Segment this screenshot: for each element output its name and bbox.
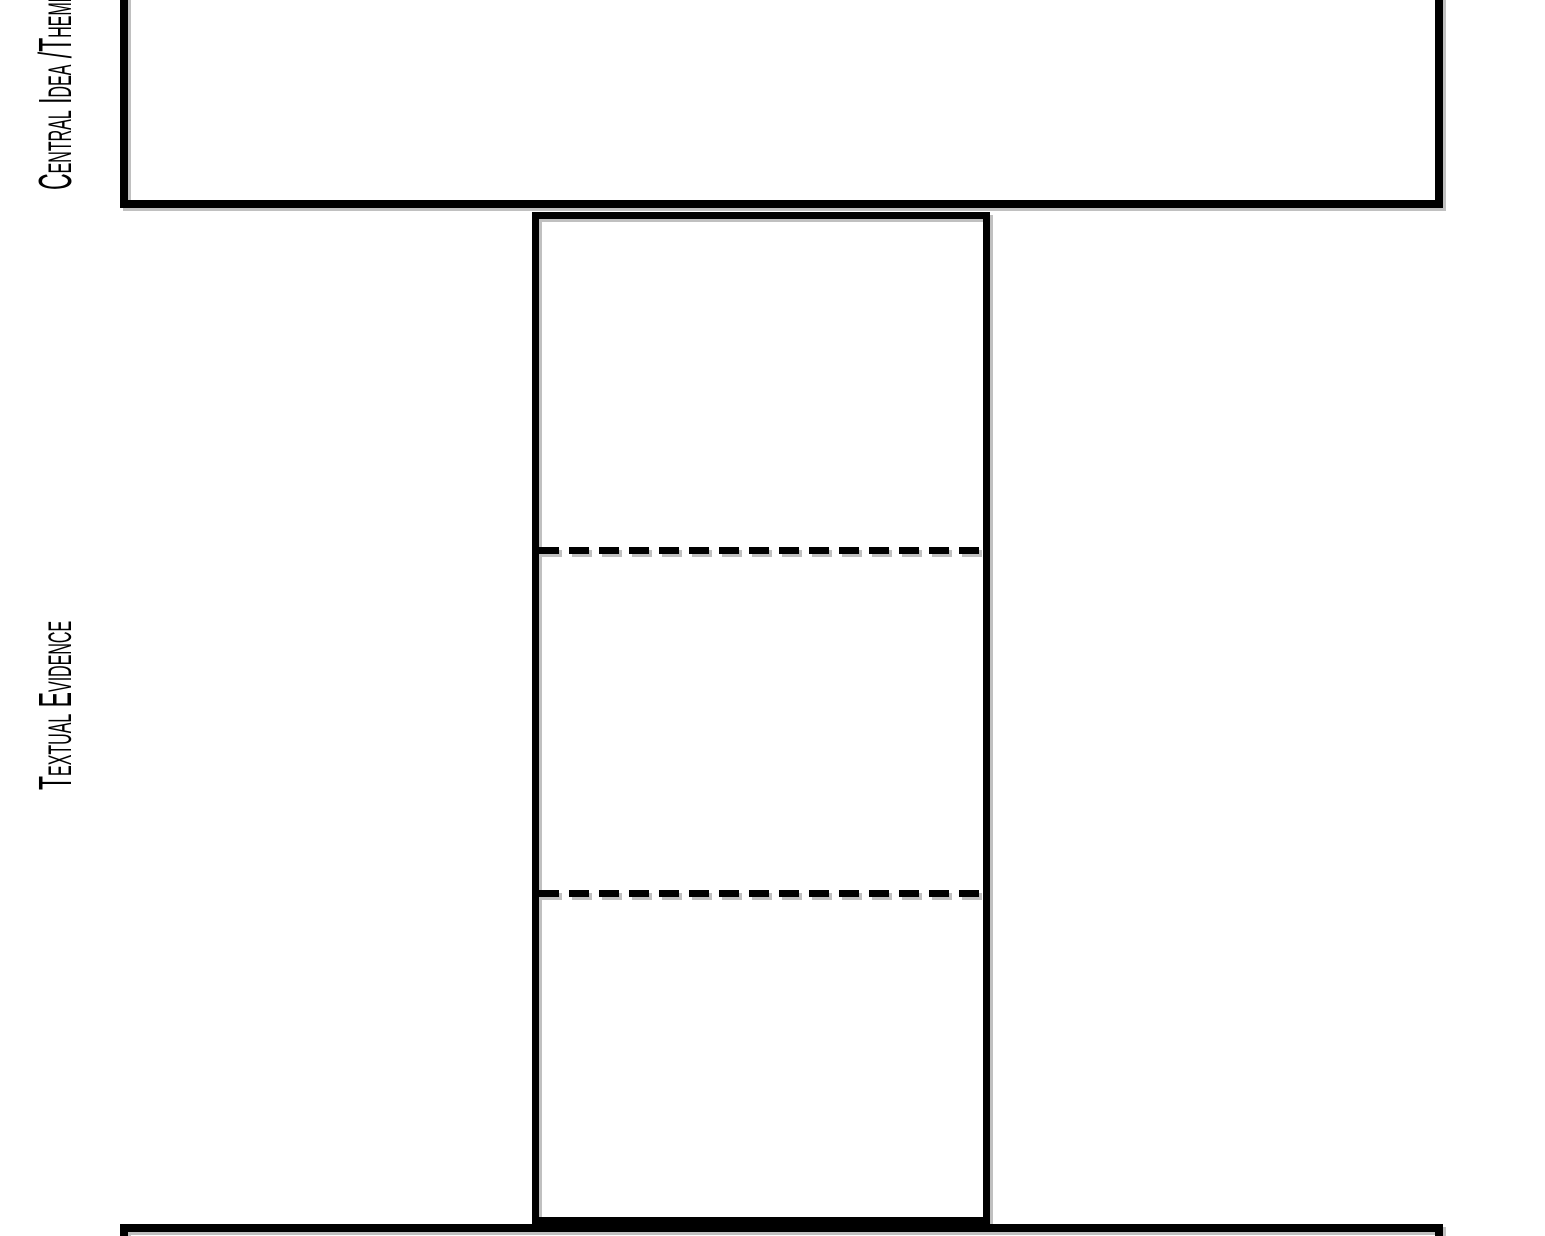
central-idea-label: Central Idea /Theme	[29, 0, 81, 190]
central-idea-box	[120, 0, 1443, 208]
evidence-cell-divider	[539, 890, 983, 897]
bottom-section-box	[120, 1224, 1443, 1236]
textual-evidence-label: Textual Evidence	[29, 621, 81, 790]
evidence-cell-divider	[539, 547, 983, 554]
worksheet-page: Central Idea /Theme Textual Evidence	[0, 0, 1545, 1236]
textual-evidence-box	[532, 212, 990, 1224]
